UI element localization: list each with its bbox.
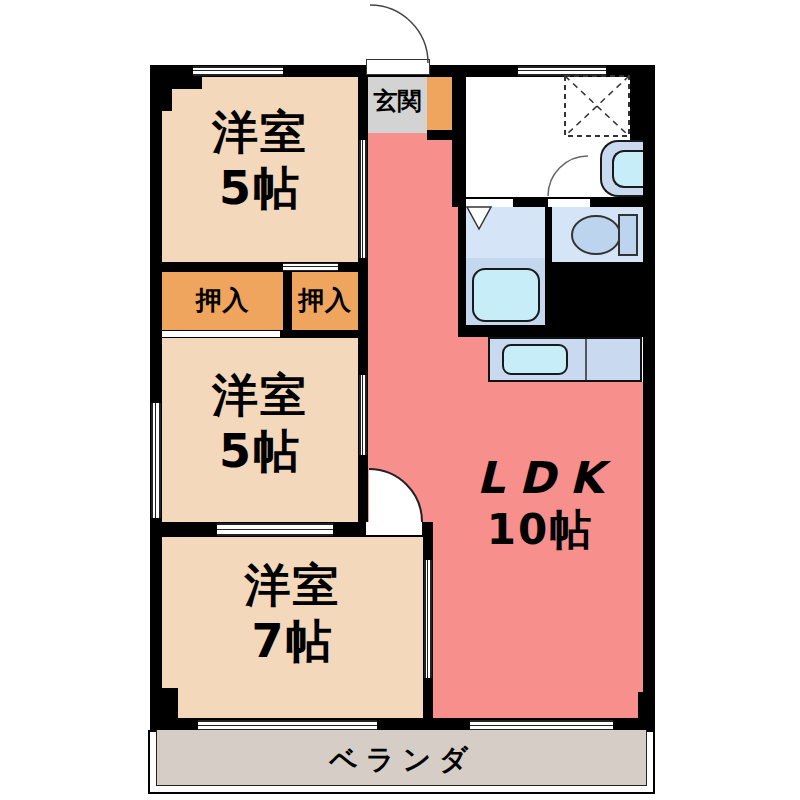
- kitchen-counter-divider: [585, 339, 587, 380]
- room-mid-name: 洋室: [212, 367, 308, 423]
- corridor-door-arc: [366, 467, 424, 525]
- window-left-room-mid: [151, 403, 161, 518]
- opening-room-mid-bottom: [217, 523, 333, 536]
- corner-top-right: [630, 65, 655, 140]
- closet-left-opening: [162, 331, 280, 337]
- ldk-name: LDK: [463, 451, 618, 505]
- room-mid-label: 洋室 5帖: [162, 358, 358, 488]
- veranda-text: ベランダ: [329, 743, 476, 777]
- sliding-door-room-bottom: [424, 560, 432, 678]
- ldk-size: 10帖: [487, 504, 593, 555]
- wall-bath-toilet: [545, 207, 552, 262]
- entrance-door-arc: [368, 5, 432, 65]
- refrigerator-space-icon: [563, 74, 631, 138]
- window-top-room: [193, 66, 283, 76]
- room-bottom-name: 洋室: [245, 557, 341, 613]
- washbasin-bowl: [612, 150, 643, 188]
- room-bottom-label: 洋室 7帖: [162, 548, 423, 678]
- wall-right: [643, 65, 655, 732]
- toilet-door-arc: [546, 152, 590, 198]
- room-bottom-size: 7帖: [251, 613, 333, 669]
- shoe-cabinet: [427, 70, 452, 132]
- corner-bottom-right: [638, 692, 655, 732]
- veranda-label: ベランダ: [150, 740, 655, 780]
- entrance-label: 玄関: [368, 70, 427, 133]
- toilet-door-opening: [548, 199, 590, 207]
- room-mid-size: 5帖: [219, 423, 301, 479]
- toilet-icon: [552, 207, 643, 262]
- wall-left: [150, 65, 162, 732]
- room-top-name: 洋室: [212, 104, 308, 160]
- wall-entrance-sub: [427, 130, 465, 140]
- bathtub-icon: [472, 268, 540, 322]
- closet-left-label: 押入: [162, 272, 283, 330]
- corner-bottom-left: [150, 688, 178, 732]
- ldk-label: LDK 10帖: [450, 438, 630, 568]
- closet-right-label: 押入: [292, 272, 358, 330]
- sliding-door-room-top: [359, 140, 367, 258]
- wall-bath-bottom: [458, 325, 643, 337]
- closet-left-text: 押入: [196, 285, 250, 317]
- kitchen-side-floor: [458, 337, 488, 382]
- bathroom-fold-door-icon: [466, 207, 492, 231]
- entrance-text: 玄関: [374, 87, 422, 116]
- sliding-door-room-mid: [359, 375, 367, 455]
- closet-right-opening: [283, 263, 338, 271]
- room-top-size: 5帖: [219, 160, 301, 216]
- wall-bath-left: [458, 197, 466, 337]
- room-top-label: 洋室 5帖: [162, 95, 358, 225]
- floor-plan: 洋室 5帖 洋室 5帖 洋室 7帖 LDK 10帖 押入 押入 玄関 ベランダ: [0, 0, 800, 800]
- bathroom-door-opening: [466, 199, 513, 207]
- wall-closet-divider: [283, 262, 292, 337]
- kitchen-sink-icon: [502, 344, 568, 375]
- closet-right-text: 押入: [298, 285, 352, 317]
